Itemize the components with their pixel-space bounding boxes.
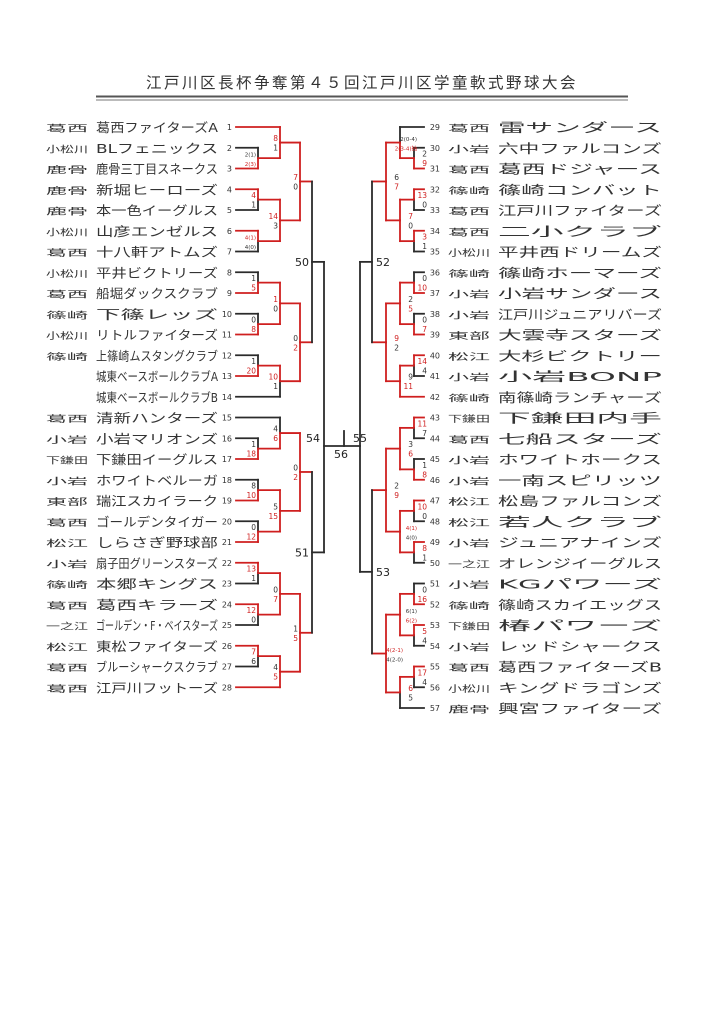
team-name: 椿パワーズ xyxy=(498,618,662,633)
team-region: 葛西 xyxy=(46,662,88,674)
team-number: 33 xyxy=(430,206,440,215)
team-region: 松江 xyxy=(46,641,88,653)
team-name: オレンジイーグルス xyxy=(498,556,662,571)
match-score-bottom: 6 xyxy=(273,434,278,443)
match-score-bottom: 5 xyxy=(408,304,413,313)
team-name: 平井西ドリームズ xyxy=(498,245,662,260)
team-number: 9 xyxy=(227,289,232,298)
team-region: 篠崎 xyxy=(46,309,88,321)
match-score-top: 6(1) xyxy=(406,609,417,615)
match-score-bottom: 3 xyxy=(273,221,278,230)
team-region: 小松川 xyxy=(46,268,88,280)
match-score-top: 2 xyxy=(408,295,413,304)
team-name: 南篠崎ランチャーズ xyxy=(498,390,662,405)
team-region: 葛西 xyxy=(46,517,88,529)
match-score-top: 11 xyxy=(417,419,427,428)
team-name: ゴールデン・F・ベイスターズ xyxy=(96,618,218,633)
team-name: 上篠崎ムスタングクラブ xyxy=(96,348,218,363)
match-score-bottom: 6 xyxy=(408,450,413,459)
team-number: 12 xyxy=(222,351,232,360)
team-region: 下鎌田 xyxy=(448,413,490,425)
match-score-bottom: 0 xyxy=(422,201,427,210)
match-score-top: 0 xyxy=(422,274,427,283)
team-name: 平井ビクトリーズ xyxy=(96,265,218,280)
match-score-top: 1 xyxy=(273,295,278,304)
team-name: 興宮ファイターズ xyxy=(498,701,662,716)
team-region: 松江 xyxy=(448,351,490,363)
match-score-bottom: 1 xyxy=(251,574,256,583)
team-region: 鹿骨 xyxy=(46,164,88,176)
team-region: 小松川 xyxy=(46,143,88,155)
match-number-56: 56 xyxy=(334,448,348,461)
match-score-bottom: 8 xyxy=(422,470,427,479)
match-score-bottom: 10 xyxy=(417,284,427,293)
team-region: 東部 xyxy=(448,330,490,342)
match-score-top: 17 xyxy=(417,668,427,677)
match-score-bottom: 4(2-0) xyxy=(386,658,403,664)
team-region: 小岩 xyxy=(448,641,490,653)
match-number-50: 50 xyxy=(295,256,309,269)
team-number: 21 xyxy=(222,538,232,547)
team-region: 下鎌田 xyxy=(46,455,88,467)
match-score-top: 0 xyxy=(422,316,427,325)
team-number: 28 xyxy=(222,683,232,692)
team-region: 葛西 xyxy=(46,247,88,259)
match-score-top: 1 xyxy=(251,357,256,366)
team-region: 葛西 xyxy=(46,123,88,135)
team-region: 篠崎 xyxy=(46,579,88,591)
match-score-top: 2(0-4) xyxy=(400,137,417,143)
team-region: 小岩 xyxy=(448,289,490,301)
team-number: 4 xyxy=(227,185,232,194)
match-score-bottom: 1 xyxy=(273,382,278,391)
match-score-top: 0 xyxy=(273,585,278,594)
match-score-bottom: 4(0) xyxy=(406,536,417,542)
match-score-top: 1 xyxy=(251,440,256,449)
match-score-top: 0 xyxy=(293,334,298,343)
team-name: 篠崎コンバット xyxy=(498,182,662,197)
match-score-top: 2 xyxy=(422,150,427,159)
team-name: 鹿骨三丁目スネークス xyxy=(96,162,218,177)
match-score-top: 14 xyxy=(268,212,278,221)
team-region: 篠崎 xyxy=(448,268,490,280)
match-number-53: 53 xyxy=(376,566,390,579)
match-score-bottom: 7 xyxy=(422,325,427,334)
team-number: 7 xyxy=(227,248,232,257)
tournament-bracket: 江戸川区長杯争奪第４５回江戸川区学童軟式野球大会 1葛西葛西ファイターズA2小松… xyxy=(0,0,724,1024)
match-score-bottom: 18 xyxy=(246,450,256,459)
team-name: ブルーシャークスクラブ xyxy=(96,660,218,675)
team-name: 江戸川ファイターズ xyxy=(498,203,662,218)
team-name: 葛西キラーズ xyxy=(96,597,218,612)
match-score-top: 13 xyxy=(246,565,256,574)
team-name: ゴールデンタイガー xyxy=(96,514,218,529)
team-region: 小岩 xyxy=(46,475,88,487)
match-score-bottom: 2(3-4)抽 xyxy=(395,145,418,153)
team-number: 39 xyxy=(430,331,440,340)
team-name: 城東ベースボールクラブA xyxy=(96,369,218,384)
team-number: 18 xyxy=(222,476,232,485)
team-region: 小岩 xyxy=(448,538,490,550)
team-number: 11 xyxy=(222,331,232,340)
team-region: 葛西 xyxy=(46,683,88,695)
team-region: 小岩 xyxy=(46,558,88,570)
team-number: 56 xyxy=(430,683,440,692)
team-name: 大杉ビクトリー xyxy=(498,348,662,363)
match-score-top: 0 xyxy=(293,463,298,472)
match-score-top: 13 xyxy=(417,191,427,200)
team-region: 篠崎 xyxy=(448,392,490,404)
team-number: 26 xyxy=(222,642,232,651)
match-number-52: 52 xyxy=(376,256,390,269)
team-region: 松江 xyxy=(448,496,490,508)
match-score-top: 3 xyxy=(422,233,427,242)
team-region: 小岩 xyxy=(448,143,490,155)
bracket-text: 1葛西葛西ファイターズA2小松川BLフェニックス3鹿骨鹿骨三丁目スネークス4鹿骨… xyxy=(46,120,663,716)
tournament-sheet: 江戸川区長杯争奪第４５回江戸川区学童軟式野球大会 1葛西葛西ファイターズA2小松… xyxy=(0,0,724,1024)
team-name: 江戸川ジュニアリバーズ xyxy=(498,307,662,322)
match-score-bottom: 2 xyxy=(394,343,399,352)
team-name: キングドラゴンズ xyxy=(498,680,662,695)
team-number: 22 xyxy=(222,559,232,568)
team-region: 葛西 xyxy=(448,206,490,218)
team-name: ホワイトホークス xyxy=(498,452,662,467)
match-score-bottom: 1 xyxy=(422,553,427,562)
team-region: 一之江 xyxy=(448,558,490,570)
match-score-bottom: 8 xyxy=(251,325,256,334)
team-region: 葛西 xyxy=(448,123,490,135)
team-region: 葛西 xyxy=(46,413,88,425)
match-score-top: 4 xyxy=(273,663,278,672)
team-name: リトルファイターズ xyxy=(96,328,218,343)
match-score-top: 7 xyxy=(408,212,413,221)
team-number: 49 xyxy=(430,538,440,547)
match-score-top: 2(1) xyxy=(245,153,256,159)
team-number: 3 xyxy=(227,165,232,174)
match-score-top: 8 xyxy=(273,134,278,143)
team-number: 45 xyxy=(430,455,440,464)
team-number: 16 xyxy=(222,434,232,443)
team-region: 小松川 xyxy=(448,247,490,259)
match-score-top: 4(2-1) xyxy=(386,648,403,654)
match-score-top: 4(1) xyxy=(406,526,417,532)
team-number: 35 xyxy=(430,248,440,257)
team-number: 57 xyxy=(430,704,440,713)
team-name: 葛西ドジャース xyxy=(498,162,662,177)
team-number: 42 xyxy=(430,393,440,402)
team-number: 32 xyxy=(430,185,440,194)
team-name: レッドシャークス xyxy=(498,639,662,654)
match-score-bottom: 15 xyxy=(268,512,278,521)
match-score-top: 7 xyxy=(293,173,298,182)
team-name: 松島ファルコンズ xyxy=(498,494,662,509)
team-number: 38 xyxy=(430,310,440,319)
match-score-bottom: 5 xyxy=(251,284,256,293)
team-region: 小岩 xyxy=(448,372,490,384)
match-score-top: 4 xyxy=(273,425,278,434)
match-score-bottom: 12 xyxy=(246,533,256,542)
match-score-bottom: 6 xyxy=(251,657,256,666)
match-score-bottom: 0 xyxy=(273,304,278,313)
team-name: 二小クラブ xyxy=(498,224,663,239)
team-name: 篠崎ホーマーズ xyxy=(498,265,662,280)
team-number: 31 xyxy=(430,165,440,174)
team-number: 43 xyxy=(430,414,440,423)
team-name: 江戸川フットーズ xyxy=(96,680,218,695)
team-region: 葛西 xyxy=(448,226,490,238)
team-name: 小岩BONP xyxy=(498,369,663,384)
team-number: 1 xyxy=(227,123,232,132)
team-name: 小岩サンダース xyxy=(498,286,662,301)
team-region: 小岩 xyxy=(448,475,490,487)
match-score-top: 5 xyxy=(422,627,427,636)
team-number: 40 xyxy=(430,351,440,360)
team-name: 小岩マリオンズ xyxy=(96,431,218,446)
team-name: 雷サンダース xyxy=(498,120,662,135)
match-score-bottom: 9 xyxy=(422,159,427,168)
match-score-bottom: 0 xyxy=(422,512,427,521)
team-region: 葛西 xyxy=(448,662,490,674)
match-score-top: 12 xyxy=(246,606,256,615)
match-score-bottom: 7 xyxy=(394,182,399,191)
match-score-top: 9 xyxy=(408,373,413,382)
team-number: 51 xyxy=(430,580,440,589)
page-title: 江戸川区長杯争奪第４５回江戸川区学童軟式野球大会 xyxy=(146,73,578,92)
match-score-top: 1 xyxy=(422,461,427,470)
team-name: 東松ファイターズ xyxy=(96,639,218,654)
team-number: 25 xyxy=(222,621,232,630)
match-score-top: 8 xyxy=(251,482,256,491)
team-region: 小岩 xyxy=(448,579,490,591)
team-name: 十八軒アトムズ xyxy=(96,245,218,260)
team-name: 下篠レッズ xyxy=(96,307,218,322)
team-region: 東部 xyxy=(46,496,88,508)
team-name: 本郷キングス xyxy=(96,577,218,592)
team-number: 2 xyxy=(227,144,232,153)
team-name: BLフェニックス xyxy=(96,141,218,156)
team-number: 53 xyxy=(430,621,440,630)
team-name: 六中ファルコンズ xyxy=(498,141,662,156)
match-score-bottom: 9 xyxy=(394,491,399,500)
match-score-bottom: 20 xyxy=(246,367,256,376)
match-score-bottom: 1 xyxy=(422,242,427,251)
match-score-bottom: 4 xyxy=(422,367,427,376)
team-name: 扇子田グリーンスターズ xyxy=(96,556,218,571)
match-score-top: 4 xyxy=(251,191,256,200)
match-number-55: 55 xyxy=(353,432,367,445)
match-score-bottom: 2 xyxy=(293,473,298,482)
match-score-bottom: 0 xyxy=(293,182,298,191)
team-name: ホワイトベルーガ xyxy=(96,473,218,488)
team-number: 6 xyxy=(227,227,232,236)
team-region: 篠崎 xyxy=(448,600,490,612)
team-region: 小岩 xyxy=(448,309,490,321)
match-score-bottom: 4 xyxy=(422,678,427,687)
match-score-bottom: 0 xyxy=(251,616,256,625)
team-region: 松江 xyxy=(448,517,490,529)
match-score-bottom: 16 xyxy=(417,595,427,604)
match-score-bottom: 0 xyxy=(408,221,413,230)
team-number: 30 xyxy=(430,144,440,153)
match-score-top: 0 xyxy=(422,585,427,594)
team-region: 下鎌田 xyxy=(448,621,490,633)
match-score-top: 14 xyxy=(417,357,427,366)
team-region: 篠崎 xyxy=(46,351,88,363)
team-region: 葛西 xyxy=(46,289,88,301)
team-region: 小松川 xyxy=(46,226,88,238)
match-score-top: 10 xyxy=(417,502,427,511)
team-region: 鹿骨 xyxy=(46,185,88,197)
match-score-top: 10 xyxy=(268,373,278,382)
team-region: 小岩 xyxy=(448,455,490,467)
team-number: 34 xyxy=(430,227,440,236)
team-number: 23 xyxy=(222,580,232,589)
team-name: 大雲寺スターズ xyxy=(498,328,662,343)
team-number: 29 xyxy=(430,123,440,132)
match-score-bottom: 4 xyxy=(422,636,427,645)
match-score-bottom: 10 xyxy=(246,491,256,500)
match-score-top: 5 xyxy=(273,502,278,511)
team-region: 葛西 xyxy=(448,164,490,176)
team-name: ジュニアナインズ xyxy=(498,535,662,550)
team-number: 52 xyxy=(430,600,440,609)
match-score-bottom: 6(2) xyxy=(406,619,417,625)
team-name: 葛西ファイターズA xyxy=(96,120,218,135)
match-score-top: 7 xyxy=(251,648,256,657)
match-score-top: 8 xyxy=(422,544,427,553)
match-score-bottom: 7 xyxy=(273,595,278,604)
team-region: 篠崎 xyxy=(448,185,490,197)
match-score-bottom: 2 xyxy=(293,343,298,352)
team-name: 城東ベースボールクラブB xyxy=(96,390,218,405)
match-score-bottom: 2(3) xyxy=(245,162,256,168)
match-score-bottom: 5 xyxy=(273,673,278,682)
match-score-bottom: 7 xyxy=(422,429,427,438)
team-region: 葛西 xyxy=(46,600,88,612)
team-number: 47 xyxy=(430,497,440,506)
team-number: 14 xyxy=(222,393,232,402)
match-score-top: 2 xyxy=(394,482,399,491)
team-name: 一南スピリッツ xyxy=(498,473,662,488)
match-score-top: 1 xyxy=(251,274,256,283)
team-name: 本一色イーグルス xyxy=(96,203,218,218)
match-score-top: 1 xyxy=(293,624,298,633)
team-number: 50 xyxy=(430,559,440,568)
team-name: 下鎌田内手 xyxy=(498,411,662,426)
match-number-51: 51 xyxy=(295,546,309,559)
team-region: 松江 xyxy=(46,538,88,550)
team-number: 41 xyxy=(430,372,440,381)
team-name: 若人クラブ xyxy=(498,514,663,529)
match-score-top: 4(1) xyxy=(245,236,256,242)
team-number: 48 xyxy=(430,517,440,526)
team-name: 七船スターズ xyxy=(498,431,662,446)
team-region: 葛西 xyxy=(448,434,490,446)
match-score-bottom: 11 xyxy=(403,382,413,391)
team-number: 5 xyxy=(227,206,232,215)
match-score-bottom: 5 xyxy=(408,693,413,702)
team-region: 鹿骨 xyxy=(448,704,490,716)
team-name: 船堀ダックスクラブ xyxy=(96,286,219,301)
team-number: 24 xyxy=(222,600,232,609)
bracket-lines xyxy=(236,127,424,708)
team-number: 46 xyxy=(430,476,440,485)
team-name: 葛西ファイターズB xyxy=(498,660,662,675)
match-score-top: 6 xyxy=(394,173,399,182)
team-number: 54 xyxy=(430,642,440,651)
team-region: 鹿骨 xyxy=(46,206,88,218)
match-score-bottom: 1 xyxy=(251,201,256,210)
team-region: 小岩 xyxy=(46,434,88,446)
team-number: 55 xyxy=(430,663,440,672)
match-score-top: 0 xyxy=(251,523,256,532)
match-score-bottom: 4(0) xyxy=(245,245,256,251)
team-number: 10 xyxy=(222,310,232,319)
team-name: 清新ハンターズ xyxy=(96,411,218,426)
team-number: 36 xyxy=(430,268,440,277)
team-name: 山彦エンゼルス xyxy=(96,224,218,239)
team-number: 44 xyxy=(430,434,440,443)
match-score-bottom: 1 xyxy=(273,144,278,153)
team-number: 15 xyxy=(222,414,232,423)
match-score-top: 9 xyxy=(394,334,399,343)
team-region: 小松川 xyxy=(448,683,490,695)
team-number: 13 xyxy=(222,372,232,381)
team-name: KGパワーズ xyxy=(498,577,662,592)
match-score-bottom: 5 xyxy=(293,634,298,643)
team-name: 瑞江スカイラーク xyxy=(96,494,218,509)
team-number: 27 xyxy=(222,663,232,672)
team-number: 17 xyxy=(222,455,232,464)
team-number: 8 xyxy=(227,268,232,277)
match-score-top: 6 xyxy=(408,684,413,693)
team-name: 下鎌田イーグルス xyxy=(96,452,218,467)
team-number: 37 xyxy=(430,289,440,298)
team-number: 20 xyxy=(222,517,232,526)
team-name: しらさぎ野球部 xyxy=(96,535,218,550)
match-number-54: 54 xyxy=(306,432,320,445)
team-name: 篠崎スカイエッグス xyxy=(498,597,662,612)
team-region: 小松川 xyxy=(46,330,88,342)
team-region: 一之江 xyxy=(46,621,88,633)
match-score-top: 3 xyxy=(408,440,413,449)
match-score-top: 0 xyxy=(251,316,256,325)
team-number: 19 xyxy=(222,497,232,506)
team-name: 新堀ヒーローズ xyxy=(96,182,218,197)
